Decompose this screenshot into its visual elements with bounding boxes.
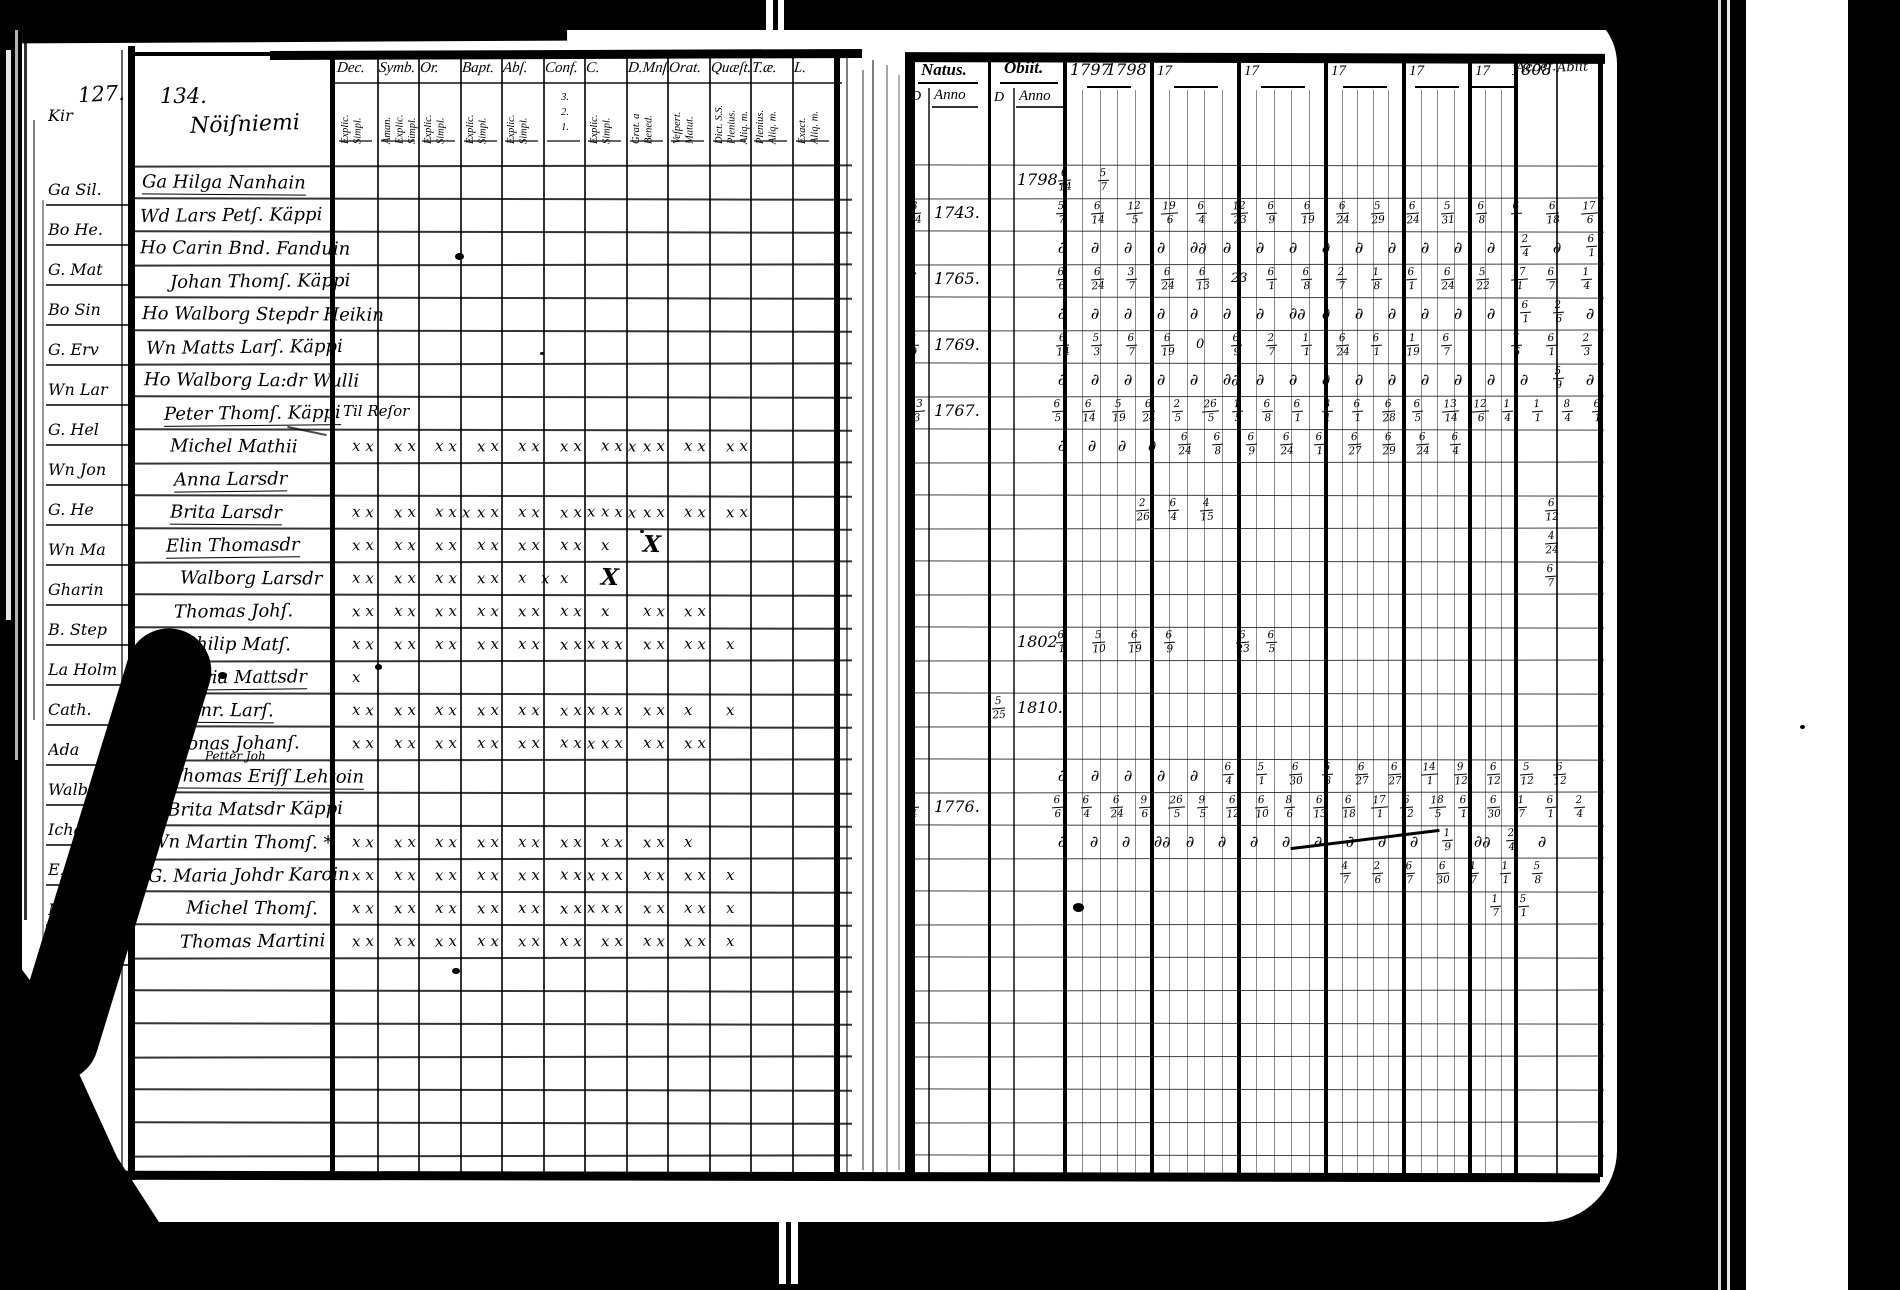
communion-mark: xx (684, 437, 712, 456)
record-fraction: 630 (1486, 795, 1501, 820)
communion-mark: xx (477, 833, 505, 852)
register-row: G. Brita Matsdr Käppi (142, 798, 343, 821)
header-dash (932, 106, 978, 108)
record-fraction: 614 (1055, 333, 1070, 358)
register-row-name: Philip Matſ. (184, 634, 291, 656)
fraction-numerator: 6 (1195, 201, 1207, 214)
fraction-denominator: 12 (1400, 807, 1414, 819)
communion-mark: x (726, 701, 740, 719)
record-fraction: 17 (1467, 861, 1479, 886)
communion-mark: xx (601, 932, 629, 951)
record-fraction: 23 (1580, 333, 1592, 358)
margin-rule (46, 684, 128, 686)
fraction-denominator: 14 (1058, 180, 1072, 192)
fraction-denominator: 24 (1406, 213, 1420, 225)
record-fraction: 67 (1125, 333, 1137, 358)
record-fraction: 612 (1225, 795, 1240, 820)
record-fraction: 61 (1351, 399, 1363, 424)
record-fraction: 415 (1199, 498, 1214, 523)
names-divider (330, 54, 335, 1176)
record-fraction: 18 (1370, 267, 1382, 292)
fraction-numerator: 9 (1196, 795, 1208, 808)
column-subheader: Åman. Explic. Simpl. (382, 84, 420, 144)
margin-rule (46, 244, 128, 246)
register-row-name: B. Thomas Eriſſ Lehtoin (146, 765, 364, 790)
fraction-denominator: 24 (1336, 213, 1350, 225)
communion-mark: xx (684, 932, 712, 951)
film-strip-line (1727, 0, 1730, 1290)
record-fraction: 171 (1370, 794, 1389, 819)
record-fraction: 68 (1300, 267, 1312, 292)
communion-mark: xx (518, 866, 546, 885)
register-row-name: Thomas Martini (180, 930, 326, 953)
register-row: Walborg Larsdr (180, 568, 322, 590)
communion-mark: xx (601, 635, 629, 654)
fraction-denominator: 12 (1454, 774, 1468, 786)
communion-mark: xx (518, 437, 546, 456)
fraction-denominator: 7 (1404, 873, 1415, 885)
record-fraction: 630 (1435, 861, 1450, 886)
fraction-denominator: 1 (1511, 213, 1522, 225)
record-fraction: 624 (1440, 267, 1455, 292)
natus-year: 1743. (934, 203, 980, 222)
fraction-denominator: 15 (1200, 510, 1214, 522)
record-fraction: 68 (1261, 399, 1273, 424)
fraction-denominator: 4 (1081, 807, 1092, 819)
margin-rule (46, 484, 128, 486)
fraction-numerator: 6 (1265, 267, 1277, 280)
gutter-fold-line (886, 65, 888, 1175)
fraction-denominator: 7 (1056, 213, 1067, 225)
record-fraction: 196 (1160, 200, 1179, 225)
record-fraction: 15 (1231, 399, 1243, 424)
record-fraction: 614 (1090, 201, 1105, 226)
fraction-denominator: 18 (1546, 213, 1560, 225)
register-row-name: Thomas Johſ. (174, 600, 293, 622)
communion-mark: xx (684, 503, 712, 522)
communion-mark: xx (726, 503, 754, 522)
fraction-numerator: 1 (1515, 795, 1527, 808)
fraction-numerator: 6 (1341, 795, 1355, 808)
column-header: D.Mnſ. (627, 60, 671, 77)
fraction-numerator: 6 (1265, 630, 1277, 643)
fraction-numerator: 8 (1561, 399, 1573, 412)
ink-blot (1800, 725, 1805, 729)
fraction-numerator: 5 (1531, 861, 1543, 874)
record-fraction: 912 (1453, 762, 1468, 787)
register-row: Ho Walborg La:dr Wulli (144, 369, 359, 392)
fraction-numerator: 6 (1399, 795, 1413, 808)
margin-fragment: Walbo (48, 780, 128, 799)
register-row: G. Maria Johdr Karoin (148, 864, 350, 887)
communion-mark: xx (684, 734, 712, 753)
top-edge-shadow (22, 0, 567, 43)
obiit-anno-header: Anno (1019, 88, 1051, 105)
register-row: Thomas Martini (180, 930, 326, 953)
record-fraction: 265 (1201, 398, 1220, 423)
fraction-numerator: 5 (1111, 399, 1125, 412)
fraction-denominator: 7 (1126, 279, 1137, 291)
fraction-denominator: 5 (1126, 213, 1144, 226)
register-row: Philip Matſ. (184, 634, 291, 656)
binding-cord (779, 1218, 786, 1284)
record-fraction: 624 (1141, 399, 1156, 424)
record-fraction: 627 (1354, 762, 1369, 787)
record-fraction: 67 (1440, 333, 1452, 358)
fraction-denominator: 24 (1142, 411, 1156, 423)
record-fraction: 529 (1370, 201, 1385, 226)
fraction-numerator: 6 (1055, 333, 1069, 346)
record-fraction: 66 (1051, 795, 1063, 820)
margin-rule (46, 404, 128, 406)
communion-mark: xx (477, 866, 505, 885)
margin-rule (46, 604, 128, 606)
record-fraction: 613 (1312, 795, 1327, 820)
margin-fragment: Bo He. (48, 220, 128, 239)
fraction-denominator: 14 (1056, 345, 1070, 357)
margin-rule (46, 284, 128, 286)
fraction-denominator: 5 (1429, 807, 1447, 820)
communion-mark: xx (643, 899, 671, 918)
fraction-numerator: 6 (1235, 630, 1249, 643)
fraction-denominator: 6 (1056, 279, 1067, 291)
margin-rule (46, 724, 128, 726)
communion-mark: xx (684, 866, 712, 885)
top-edge-shadow (555, 0, 1620, 30)
column-subheader: Exact. Aliq. m. (797, 84, 822, 144)
fraction-denominator: 1 (1421, 774, 1439, 787)
film-strip-line (1718, 0, 1721, 1290)
record-fraction: 11 (1531, 399, 1543, 424)
ditto-mark: ∂∂ (1222, 369, 1240, 390)
record-fraction: 624 (1160, 267, 1175, 292)
register-row-name: Ho Carin Bnd. Fanduin (140, 237, 350, 259)
obiit-day: 525 (991, 696, 1006, 721)
record-fraction: 68 (1321, 762, 1333, 787)
year-divider (1514, 58, 1518, 1177)
record-fraction: 17 (1515, 795, 1527, 820)
fraction-numerator: 6 (1585, 234, 1597, 247)
rule-line-v (1117, 90, 1118, 1176)
fraction-numerator: 6 (1347, 432, 1361, 445)
fraction-denominator: 1 (1371, 807, 1389, 820)
margin-fragment: Wn Jon (48, 460, 128, 479)
communion-mark: xx (601, 899, 629, 918)
record-fraction: 25 (1171, 399, 1183, 424)
record-fraction: 61 (1055, 630, 1067, 655)
communion-mark: x (560, 569, 574, 587)
record-fraction: 61 (1370, 333, 1382, 358)
fraction-denominator: 10 (1255, 807, 1269, 819)
fraction-numerator: 8 (1321, 399, 1333, 412)
register-row-name: Thonr. Larſ. (166, 700, 274, 724)
register-row: B. Thomas Eriſſ Lehtoin (146, 765, 364, 788)
year-header: 17 (1157, 63, 1172, 80)
ink-blot (1073, 903, 1084, 912)
fraction-numerator: 6 (1195, 267, 1209, 280)
record-fraction: 61 (1519, 300, 1531, 325)
register-row-name: Johan Thomſ. Käppi (170, 270, 350, 293)
margin-rule (46, 364, 128, 366)
fraction-denominator: 1 (1352, 411, 1363, 423)
communion-mark: xx (643, 701, 671, 720)
communion-mark: xx (560, 536, 588, 555)
fraction-denominator: 5 (1412, 411, 1423, 423)
record-fraction: 61 (1591, 399, 1603, 424)
column-header: L. (793, 60, 807, 77)
register-row-name: Elin Thomasdr (166, 534, 300, 558)
communion-mark: x (684, 833, 698, 851)
fraction-denominator: 6 (1284, 807, 1295, 819)
record-fraction: 612 (1486, 762, 1501, 787)
communion-mark: xx (352, 635, 380, 654)
year-divider (1468, 58, 1472, 1177)
record-fraction: 17 (1489, 894, 1501, 919)
record-fraction: 61 (1265, 267, 1277, 292)
column-subheader: 3. 2. 1. (553, 90, 577, 135)
record-fraction: 125 (1125, 200, 1144, 225)
fraction-numerator: 6 (1127, 630, 1141, 643)
rule-line-v (750, 56, 752, 1176)
record-fraction: 66 (1055, 267, 1067, 292)
header-dash (1087, 86, 1131, 88)
fraction-numerator: 6 (1051, 795, 1063, 808)
margin-fragment: Ga Sil. (48, 180, 128, 199)
fraction-numerator: 6 (1261, 399, 1273, 412)
fraction-numerator: 6 (1510, 201, 1522, 214)
fraction-denominator: 5 (1168, 807, 1186, 820)
fraction-denominator: 26 (1136, 510, 1150, 522)
communion-mark: xx (643, 437, 671, 456)
fraction-denominator: 5 (1172, 411, 1183, 423)
record-fraction: 24 (1519, 234, 1531, 259)
fraction-denominator: 14 (1442, 411, 1460, 424)
margin-fragment: Icha (48, 820, 128, 839)
fraction-numerator: 1 (1580, 267, 1592, 280)
fraction-numerator: 6 (1160, 267, 1174, 280)
communion-mark: xx (643, 503, 671, 522)
column-subheader: Explic. Simpl. (465, 84, 490, 144)
record-fraction: 64 (1080, 795, 1092, 820)
communion-mark: xx (560, 932, 588, 951)
margin-rule (46, 644, 128, 646)
fraction-numerator: 6 (1545, 201, 1559, 214)
fraction-numerator: 7 (1510, 333, 1522, 346)
communion-mark: xx (352, 701, 380, 720)
register-row: Ga Hilga Nanhain (142, 171, 306, 193)
fraction-numerator: 6 (1435, 861, 1449, 874)
fraction-numerator: 6 (1109, 795, 1123, 808)
register-scan: 127. 134. Nöiſniemi Natus. Obiit. D Anno… (0, 0, 1900, 1290)
communion-mark: xx (394, 932, 422, 951)
fraction-denominator: 25 (992, 708, 1006, 720)
fraction-denominator: 8 (1322, 774, 1333, 786)
fraction-numerator: 5 (1475, 267, 1489, 280)
communion-mark: xx (352, 503, 380, 522)
record-fraction: 61 (1457, 795, 1469, 820)
register-row-name: G. Brita Matsdr Käppi (142, 798, 343, 821)
communion-mark: xx (435, 833, 463, 852)
film-strip-band (1746, 0, 1848, 1290)
register-row: Ho Walborg Stepdr Heikin (142, 303, 384, 326)
record-fraction: 613 (1195, 267, 1210, 292)
fraction-numerator: 6 (1051, 399, 1063, 412)
fraction-denominator: 30 (1436, 873, 1450, 885)
record-fraction: 630 (1288, 762, 1303, 787)
fraction-denominator: 14 (1091, 213, 1105, 225)
record-fraction: 624 (1335, 333, 1350, 358)
communion-mark: X (601, 564, 620, 592)
record-fraction: 81 (1321, 399, 1333, 424)
record-fraction: 76 (1510, 333, 1522, 358)
record-fraction: 68 (1475, 201, 1487, 226)
record-fraction: 67 (1403, 861, 1415, 886)
record-fraction: 512 (1519, 762, 1534, 787)
communion-mark: xx (684, 602, 712, 621)
fraction-numerator: 6 (1351, 399, 1363, 412)
communion-mark: xx (435, 899, 463, 918)
fraction-denominator: 7 (1516, 807, 1527, 819)
record-fraction: 96 (1138, 795, 1150, 820)
communion-mark: xx (643, 734, 671, 753)
fraction-denominator: 9 (908, 345, 919, 357)
fraction-numerator: 6 (1313, 432, 1325, 445)
page-edge-streak (42, 200, 44, 980)
fraction-denominator: 6 (1553, 312, 1564, 324)
record-fraction: 624 (1335, 201, 1350, 226)
fraction-denominator: 29 (1371, 213, 1385, 225)
fraction-denominator: 13 (1196, 279, 1210, 291)
column-subheader: Dict. S.S. Plenius. Aliq. m. (714, 84, 752, 144)
communion-mark: xx (477, 602, 505, 621)
communion-mark: xx (601, 701, 629, 720)
column-header: Bapt. (461, 60, 495, 77)
fraction-numerator: 6 (1544, 498, 1558, 511)
register-row: Wn Matts Larſ. Käppi (146, 336, 343, 359)
fraction-denominator: 6 (1052, 807, 1063, 819)
column-header: Or. (419, 60, 440, 77)
fraction-denominator: 3 (1091, 345, 1102, 357)
record-fraction: 24 (1505, 828, 1517, 853)
communion-mark: xx (601, 734, 629, 753)
ditto-mark: ∂∂ (1288, 303, 1306, 324)
fraction-numerator: 6 (1354, 762, 1368, 775)
fraction-numerator: 6 (1055, 630, 1067, 643)
communion-mark: xx (477, 437, 505, 456)
natus-anno-header: Anno (934, 87, 966, 104)
margin-rule (46, 444, 128, 446)
record-fraction: 126 (1471, 398, 1490, 423)
fraction-denominator: 1 (1056, 642, 1067, 654)
register-row-name: Ho Walborg Stepdr Heikin (142, 303, 384, 326)
register-row: Wd Lars Petſ. Käppi (140, 204, 322, 227)
year-divider (1150, 58, 1154, 1177)
communion-mark: xx (477, 932, 505, 951)
fraction-denominator: 3 (908, 411, 926, 424)
fraction-denominator: 4 (1562, 411, 1573, 423)
fraction-numerator: 6 (1335, 201, 1349, 214)
record-fraction: 86 (1283, 795, 1295, 820)
record-fraction: 65 (1051, 399, 1063, 424)
record-fraction: 624 (1090, 267, 1105, 292)
fraction-numerator: 6 (1081, 399, 1095, 412)
margin-fragment: Bo Sin (48, 300, 128, 319)
column-subheader: Explic. Simpl. (589, 84, 614, 144)
record-fraction: 24 (1573, 795, 1585, 820)
fraction-denominator: 9 (1442, 840, 1453, 852)
fraction-denominator: 24 (1091, 279, 1105, 291)
fraction-denominator: 4 (1574, 807, 1585, 819)
record-fraction: 510 (1091, 630, 1106, 655)
margin-rule (46, 804, 128, 806)
fraction-numerator: 6 (1291, 399, 1303, 412)
register-row: Peter Thomſ. Käppi (164, 402, 341, 425)
fraction-denominator: 24 (1416, 444, 1430, 456)
record-fraction: 69 (1163, 630, 1175, 655)
fraction-numerator: 8 (1283, 795, 1295, 808)
communion-mark: xx (518, 536, 546, 555)
record-fraction: 176 (1580, 200, 1599, 225)
header-dash (1261, 86, 1305, 88)
record-fraction: 69 (1265, 201, 1277, 226)
communion-mark: xx (394, 536, 422, 555)
fraction-numerator: 6 (1312, 795, 1326, 808)
fraction-denominator: 1 (1314, 444, 1325, 456)
rule-line-v (1082, 90, 1083, 1176)
column-header: Symb. (378, 60, 416, 77)
fraction-numerator: 6 (1211, 432, 1223, 445)
register-row: Johan Thomſ. Käppi (170, 270, 350, 293)
column-header: C. (585, 60, 601, 77)
register-row: Wn Martin Thomſ. * (150, 831, 333, 853)
record-fraction: 84 (1561, 399, 1573, 424)
year-divider (1402, 58, 1406, 1177)
fraction-numerator: 3 (1125, 267, 1137, 280)
margin-rule (46, 564, 128, 566)
fraction-denominator: 5 (1052, 411, 1063, 423)
rule-line-v (1437, 90, 1438, 1176)
fraction-numerator: 6 (1265, 201, 1277, 214)
record-fraction: 424 (1544, 531, 1559, 556)
village-title: Nöiſniemi (190, 110, 301, 139)
column-subheader: Veſpert. Matut. (672, 84, 697, 144)
fraction-denominator: 1 (1518, 906, 1529, 918)
fraction-numerator: 6 (1141, 399, 1155, 412)
fraction-numerator: 1 (1370, 267, 1382, 280)
record-fraction: 58 (1531, 861, 1543, 886)
fraction-denominator: 1 (1592, 411, 1603, 423)
margin-fragment: B. Step (48, 620, 128, 639)
record-fraction: 141 (1420, 761, 1439, 786)
communion-mark: x (601, 536, 615, 554)
fraction-numerator: 6 (1335, 333, 1349, 346)
fraction-denominator: 4 (1520, 246, 1531, 258)
fraction-numerator: 5 (1370, 201, 1384, 214)
row-subname: Petter Joh (205, 749, 266, 763)
fraction-denominator: 19 (1161, 345, 1175, 357)
record-fraction: 531 (1440, 201, 1455, 226)
fraction-denominator: 1 (1371, 345, 1382, 357)
fraction-numerator: 1 (1300, 333, 1312, 346)
record-fraction: 619 (1300, 201, 1315, 226)
record-fraction: 61 (1291, 399, 1303, 424)
fraction-denominator: 9 (1246, 444, 1257, 456)
communion-mark: xxx (560, 733, 601, 752)
margin-rule (46, 884, 128, 886)
fraction-denominator: 8 (1212, 444, 1223, 456)
fraction-denominator: 23 (1231, 213, 1249, 226)
fraction-denominator: 9 (1553, 378, 1564, 390)
